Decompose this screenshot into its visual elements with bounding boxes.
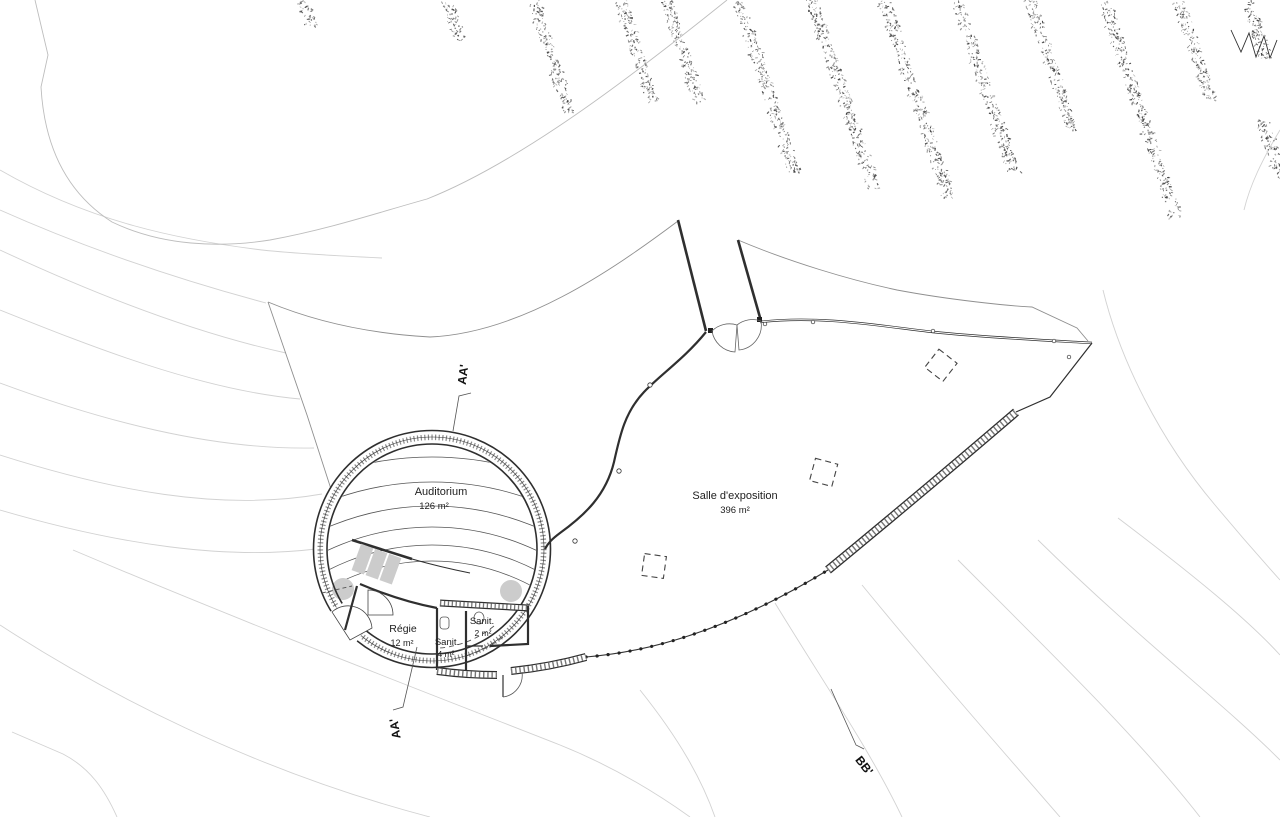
mullion-dot (1067, 355, 1071, 359)
vine-row (806, 0, 880, 189)
column-dot (573, 539, 577, 543)
section-aa-bottom-label: AA' (387, 717, 404, 739)
vine-row (1258, 120, 1280, 181)
salle-area: 396 m² (720, 505, 750, 516)
vine-row (734, 2, 801, 174)
column-dot (617, 469, 621, 473)
sanit4-label: Sanit. (435, 637, 459, 648)
section-aa-top-leader (453, 393, 471, 431)
auditorium-area: 126 m² (419, 501, 449, 512)
vine-row (297, 1, 317, 28)
wc-fixture (440, 617, 449, 629)
sanit2-area: 2 m² (475, 628, 492, 638)
section-bb-label: BB' (852, 753, 876, 778)
mullion-dot (931, 329, 935, 333)
regie-label: Régie (389, 623, 417, 635)
vine-row (1101, 1, 1181, 220)
section-aa-top-label: AA' (455, 363, 471, 385)
vine-row (442, 2, 466, 41)
vine-row (954, 0, 1023, 173)
mullion-dot (763, 322, 767, 326)
mullion-dot (1052, 339, 1056, 343)
vineyard-rows (297, 0, 1280, 219)
entrance-wall-right (738, 240, 761, 321)
architectural-site-plan: Auditorium 126 m² Salle d'exposition 396… (0, 0, 1280, 817)
auditorium-label: Auditorium (415, 486, 468, 498)
sanit4-area: 4 m² (438, 649, 455, 659)
vine-row (530, 0, 574, 113)
door-swing (503, 672, 522, 697)
salle-label: Salle d'exposition (692, 490, 777, 502)
vine-row (615, 1, 659, 103)
column-dot (648, 383, 652, 387)
speaker-column-right (500, 580, 522, 602)
site-plan-svg: Auditorium 126 m² Salle d'exposition 396… (0, 0, 1280, 817)
mullion-dot (811, 320, 815, 324)
vine-row (661, 0, 706, 104)
vine-row (1172, 2, 1216, 101)
entrance-wall-left (678, 220, 706, 331)
vine-row (1024, 0, 1077, 131)
regie-area: 12 m² (390, 638, 413, 648)
sanit2-label: Sanit. (470, 616, 494, 627)
vine-row (877, 1, 953, 199)
scrub-mark (1231, 30, 1277, 58)
